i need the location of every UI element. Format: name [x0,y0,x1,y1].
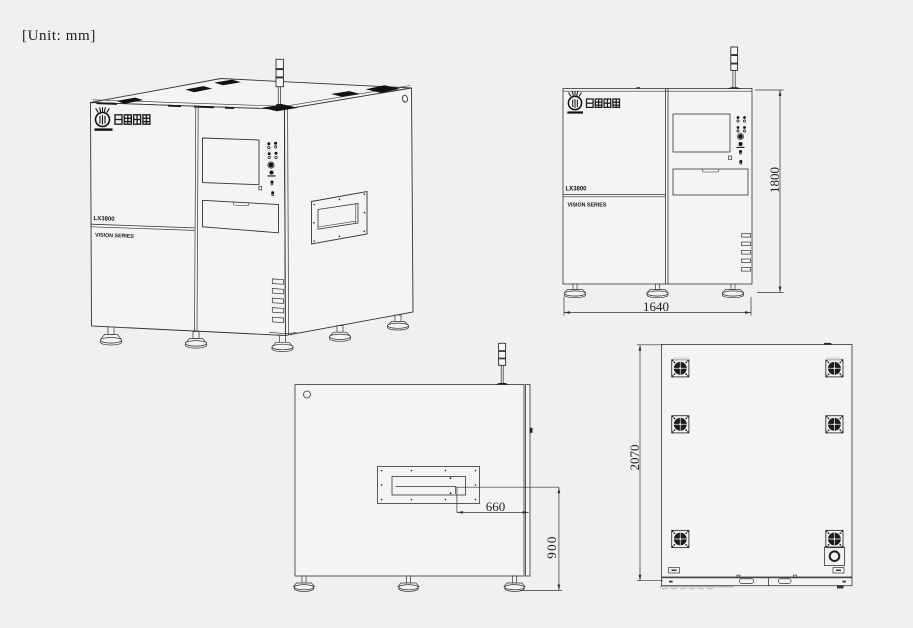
svg-text:660: 660 [486,499,506,514]
svg-text:VISION SERIES: VISION SERIES [568,203,607,209]
svg-text:900: 900 [544,535,559,558]
svg-text:LX3800: LX3800 [93,216,115,223]
svg-text:1800: 1800 [767,167,782,193]
svg-text:2070: 2070 [627,445,642,471]
svg-text:[Unit: mm]: [Unit: mm] [22,28,96,44]
svg-text:1640: 1640 [643,299,669,314]
svg-text:LX3800: LX3800 [566,187,588,193]
